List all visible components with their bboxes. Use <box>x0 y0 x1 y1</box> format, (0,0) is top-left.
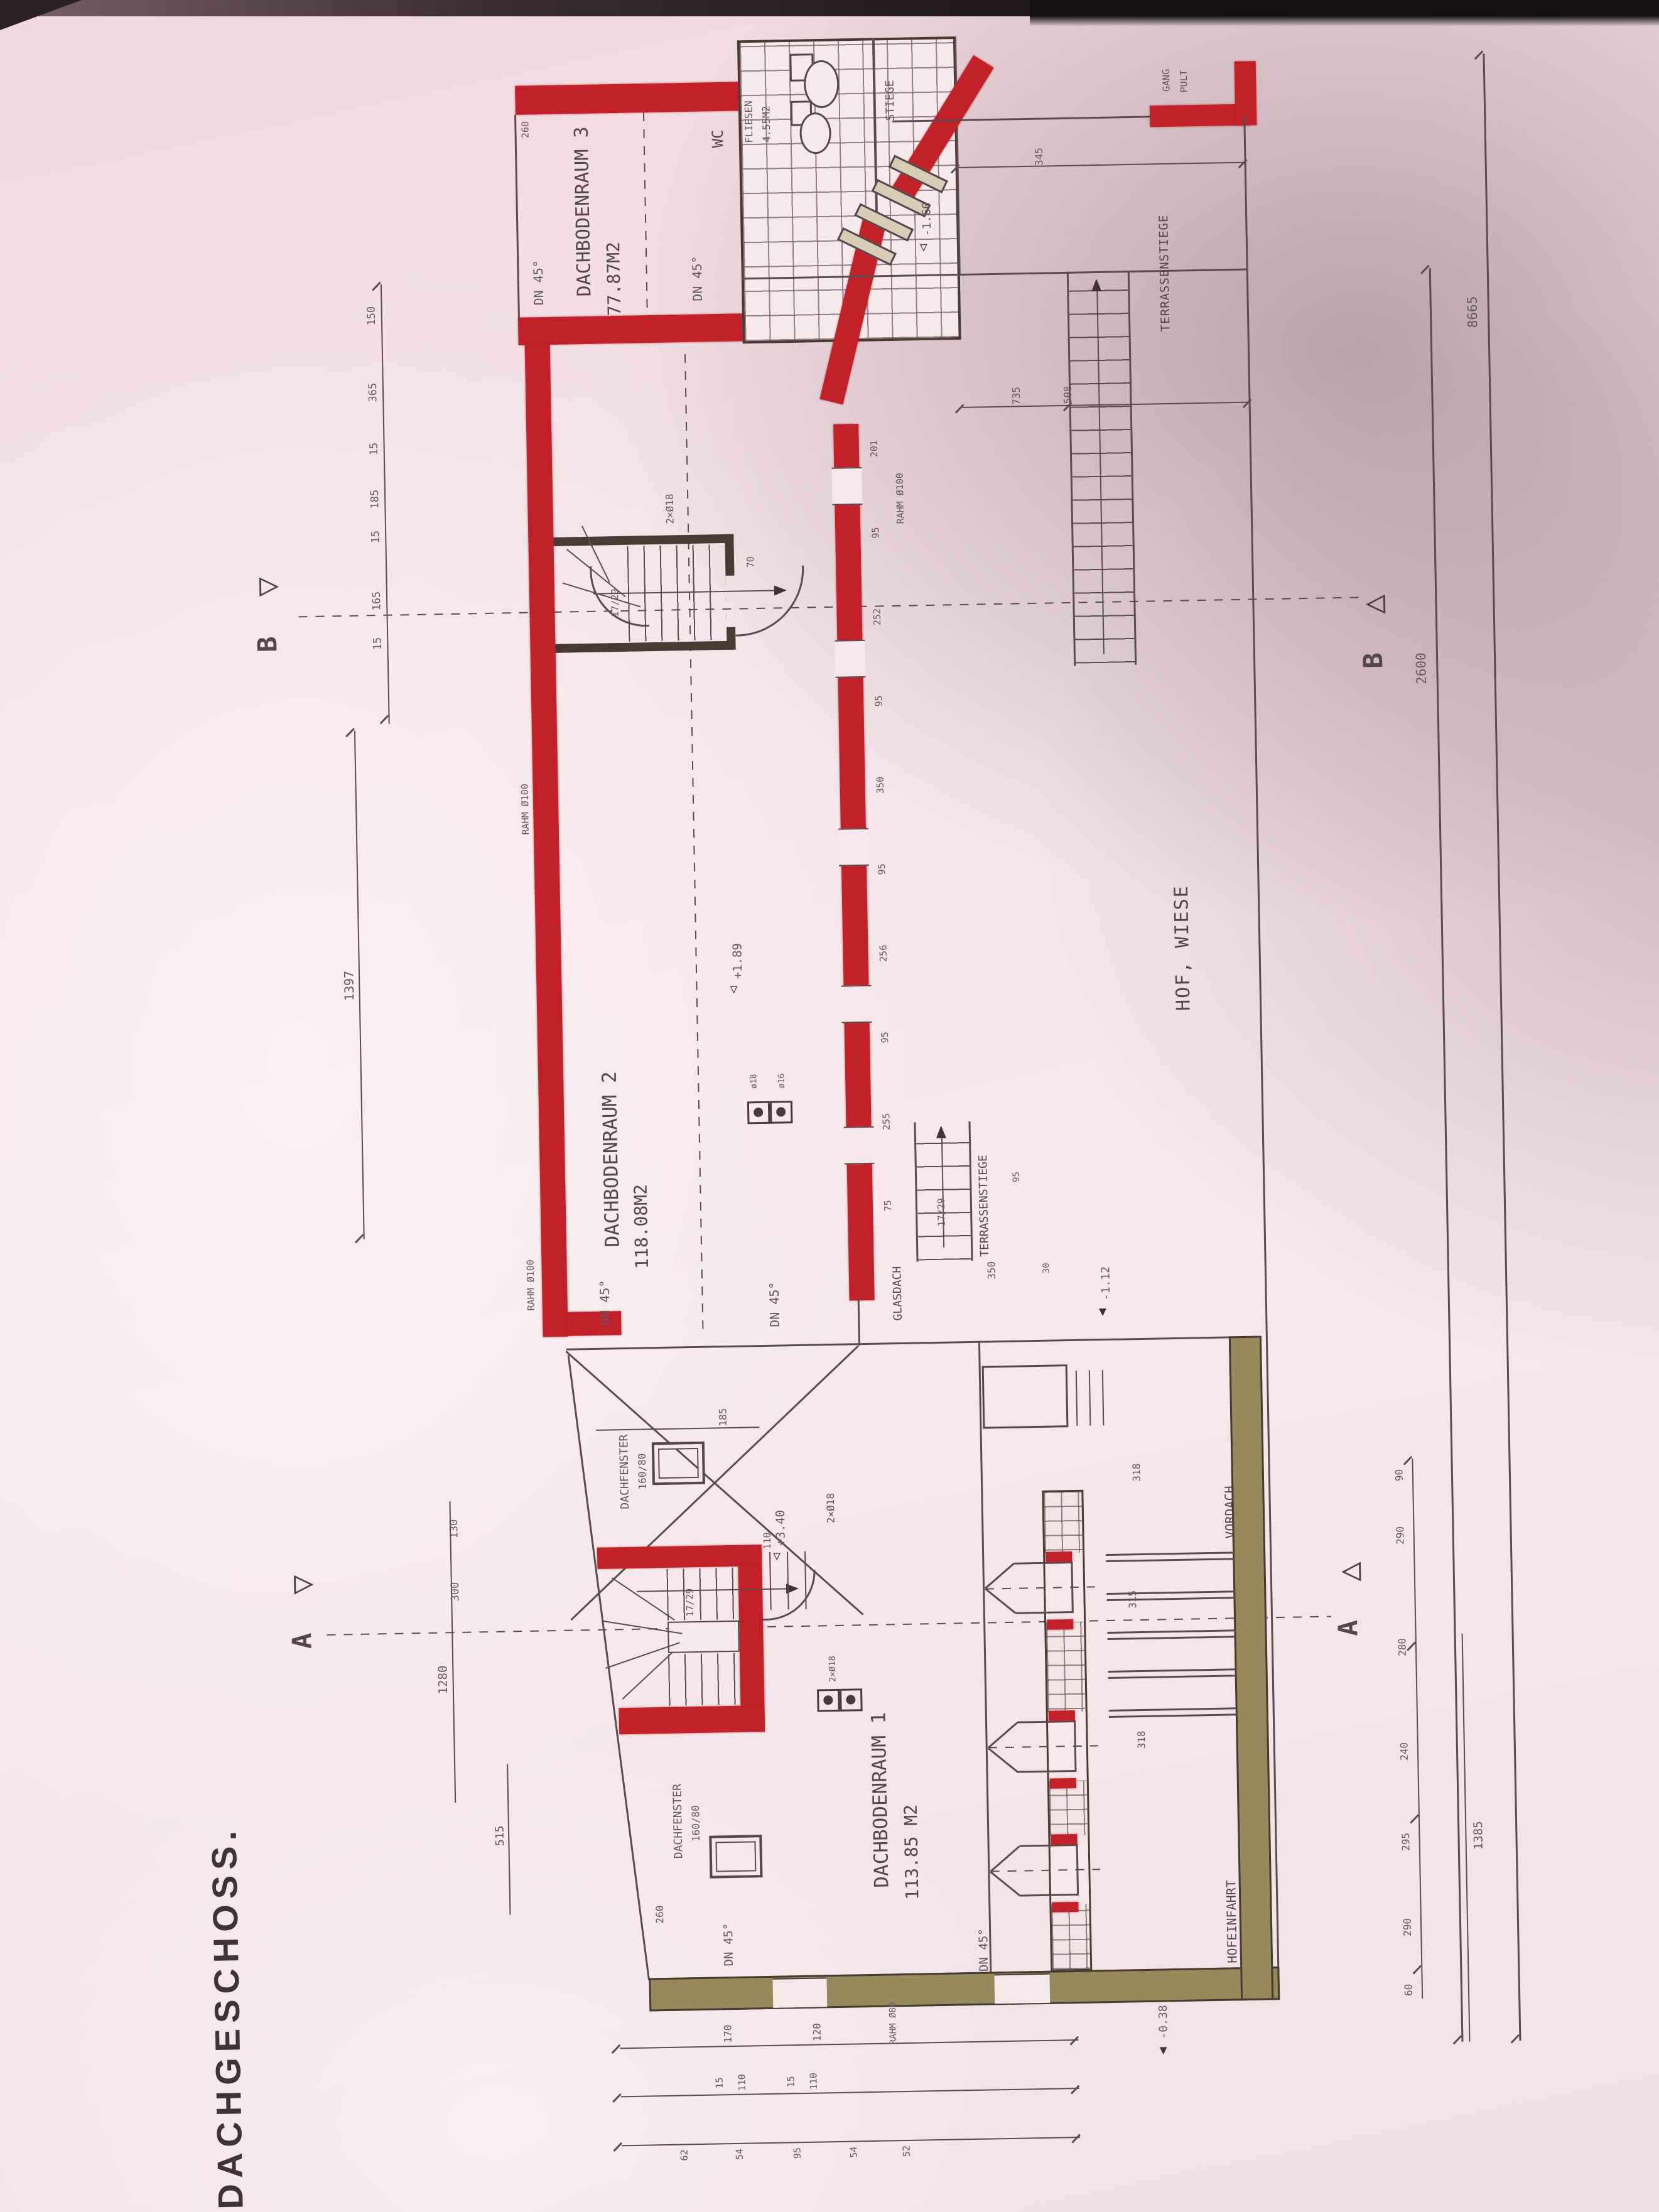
tick <box>345 728 355 737</box>
b2-2: 15 <box>786 2076 796 2087</box>
glasdach-wall-lower <box>858 1298 860 1346</box>
tick <box>1071 2085 1080 2095</box>
note-rahm100-3: RAHM Ø100 <box>895 473 906 524</box>
vordach-beam-1a <box>1106 1551 1234 1556</box>
stair2-wall-top <box>597 1545 762 1569</box>
level-160-marker: ▽ <box>920 240 927 253</box>
rchain-5: 290 <box>1402 1918 1413 1936</box>
llower-3: 515 <box>494 1825 506 1846</box>
section-a-left-arrow: ▷ <box>294 1566 314 1599</box>
terrace-door <box>982 1364 1069 1428</box>
dim-line-total <box>1483 54 1521 2041</box>
tick <box>372 281 381 291</box>
tick <box>1420 265 1430 274</box>
b3-1: 54 <box>735 2149 745 2160</box>
note-rahm80: RAHM Ø80 <box>889 2002 899 2045</box>
dim-line-bottom-3 <box>622 2137 1080 2146</box>
dim-1397: 1397 <box>342 971 356 1001</box>
pult-label: PULT <box>1179 70 1189 92</box>
dim-735: 735 <box>1012 387 1022 405</box>
wall-dim-0: 201 <box>870 440 880 457</box>
stiege-label: STIEGE <box>885 80 897 121</box>
hofeinfahrt-label: HOFEINFAHRT <box>1224 1880 1239 1963</box>
tick <box>613 2142 622 2152</box>
floorplan-photo: DACHGESCHOSS. DACHBODENRAUM 3 77.87M2 DN… <box>0 0 1659 2212</box>
window-opening-3 <box>838 828 869 866</box>
dim-line-bottom-2 <box>621 2088 1079 2097</box>
dim-line-inner <box>1429 268 1464 2042</box>
b2-1: 110 <box>737 2074 747 2091</box>
vordach-beam-3b <box>1108 1636 1236 1640</box>
lchain-2: 15 <box>369 443 381 456</box>
note-dn45-2: DN 45° <box>691 256 705 301</box>
dim-70: 70 <box>746 556 756 568</box>
dim-315: 315 <box>1128 1590 1138 1609</box>
dim-260-lower: 260 <box>655 1906 666 1924</box>
dim-line-bottom-1 <box>620 2039 1078 2049</box>
lchain-6: 15 <box>372 637 384 650</box>
bottom-window-gap-2 <box>994 1973 1050 2005</box>
note-rahm100-2: RAHM Ø100 <box>526 1260 537 1311</box>
vordach-beam-4b <box>1108 1675 1236 1679</box>
dim-318-a: 318 <box>1132 1464 1142 1482</box>
dormer-b-cheek-bot <box>1052 1902 1078 1913</box>
b3-3: 54 <box>849 2146 859 2157</box>
section-a-right-arrow: ◁ <box>1341 1553 1361 1587</box>
b3-0: 62 <box>680 2149 690 2161</box>
note-dn45-6: DN 45° <box>978 1928 991 1972</box>
dim-350: 350 <box>986 1261 997 1280</box>
stair2-winder-1 <box>612 1577 675 1621</box>
wall-corner-vertical <box>1235 61 1257 126</box>
wall-dim-2: 252 <box>873 608 883 625</box>
lchain-4: 15 <box>370 531 382 544</box>
section-line-b <box>299 596 1360 617</box>
wall-dim-6: 256 <box>878 945 889 962</box>
dormer-b-slant-bot <box>990 1871 1021 1897</box>
llower-1: 300 <box>450 1582 462 1602</box>
note-dn45-4: DN 45° <box>768 1281 782 1327</box>
section-b-left-letter: B <box>254 636 282 652</box>
wc-finish-label: FLIESEN <box>743 100 755 143</box>
dim-line-right-chain <box>1412 1459 1423 1999</box>
vordach-beam-5a <box>1109 1707 1237 1712</box>
dachfenster-upper <box>652 1442 705 1486</box>
flue-d18: ø18 <box>750 1074 759 1089</box>
rchain-1: 290 <box>1395 1526 1406 1545</box>
dormer-a-cheek-top <box>1049 1710 1075 1721</box>
section-a-left-letter: A <box>288 1632 316 1649</box>
dim-line-top-1 <box>958 162 1246 168</box>
stair2-landing-void <box>667 1621 740 1653</box>
wall-room3-bottom <box>518 313 743 345</box>
llower-2: 1280 <box>437 1665 450 1694</box>
stair1-flue-note: 2×Ø18 <box>665 494 676 524</box>
wc-label: WC <box>710 129 727 148</box>
wall-room2-left <box>525 345 568 1337</box>
level-340-marker: ▽ <box>773 1550 781 1562</box>
note-dn45-3: DN 45° <box>598 1280 612 1325</box>
plan-drawing: DACHGESCHOSS. DACHBODENRAUM 3 77.87M2 DN… <box>0 0 1659 2212</box>
dachfenster-upper-label: DACHFENSTER <box>619 1434 632 1509</box>
dim-line-1385 <box>1462 1634 1471 2042</box>
stair2-ratio: 17/29 <box>685 1588 696 1616</box>
dim-95-terr: 95 <box>1012 1172 1022 1182</box>
note-dn45-5: DN 45° <box>723 1923 736 1967</box>
window-opening-5 <box>844 1126 875 1165</box>
stair2-wall-bottom <box>619 1705 765 1734</box>
level-340-text: +3.40 <box>775 1510 788 1546</box>
note-dn45-1: DN 45° <box>532 260 546 306</box>
room2-name: DACHBODENRAUM 2 <box>600 1071 624 1248</box>
room1-flue-note: 2×Ø18 <box>826 1493 837 1523</box>
stair1-ratio: 17/29 <box>610 588 621 617</box>
room1-name: DACHBODENRAUM 1 <box>868 1712 892 1888</box>
b1-1: 120 <box>812 2023 823 2041</box>
section-a-right-letter: A <box>1334 1620 1363 1636</box>
terrassenstiege-arrowhead <box>1091 279 1101 291</box>
dim-110: 110 <box>763 1532 773 1549</box>
ridge-line-room2 <box>684 354 703 1330</box>
dormer-a-cheek-bot <box>1050 1778 1076 1789</box>
dachfenster-upper-size: 160/80 <box>637 1453 649 1489</box>
dachfenster-lower-size: 160/80 <box>691 1805 702 1842</box>
b1-0: 170 <box>723 2025 733 2043</box>
dim-260-top: 260 <box>521 121 531 138</box>
dormer-b-cheek-top <box>1051 1834 1077 1845</box>
dim-line-left-lower <box>449 1501 456 1803</box>
dim-508: 508 <box>1063 386 1074 404</box>
b3-4: 52 <box>902 2145 912 2157</box>
level-112-marker: ▼ <box>1099 1305 1106 1317</box>
room1-right-wall <box>978 1341 992 1974</box>
rchain-6: 60 <box>1403 1984 1414 1997</box>
rchain-0: 90 <box>1394 1469 1405 1482</box>
dim-185: 185 <box>718 1408 728 1427</box>
vordach-label: VORDACH <box>1223 1486 1238 1539</box>
wall-dim-9: 75 <box>884 1200 894 1211</box>
tick <box>955 404 965 413</box>
window-opening-2 <box>835 640 865 678</box>
stair1-wall-right-up <box>725 534 734 576</box>
hof-wiese-label: HOF, WIESE <box>1172 885 1194 1011</box>
dormer-c-cheek-bot <box>1047 1619 1073 1630</box>
terrstair2-arrowhead <box>936 1126 946 1138</box>
terrace-door-step-3 <box>1102 1370 1105 1425</box>
chimney2-flue-note: 2×Ø18 <box>828 1656 838 1682</box>
dachfenster-lower-label: DACHFENSTER <box>672 1784 685 1859</box>
rchain-2: 280 <box>1397 1638 1408 1656</box>
wall-dim-4: 350 <box>876 777 886 794</box>
b2-0: 15 <box>715 2077 725 2088</box>
vordach-beam-5b <box>1109 1713 1237 1718</box>
vordach-beam-1b <box>1106 1558 1234 1562</box>
wc-area-label: 4.55M2 <box>761 106 772 143</box>
stair1-wall-bottom <box>555 641 735 653</box>
tick <box>380 715 389 724</box>
terrace-door-step-2 <box>1089 1370 1091 1425</box>
section-line-a <box>327 1616 1331 1635</box>
room2-area: 118.08M2 <box>632 1184 652 1269</box>
tick <box>612 2044 621 2054</box>
dim-inner-2600: 2600 <box>1414 652 1429 684</box>
tick <box>1071 2134 1081 2144</box>
wall-room2-left-stub <box>568 1311 622 1336</box>
existing-wall-bottom <box>649 1967 1280 2011</box>
dormer-c-cheek-top <box>1046 1551 1072 1562</box>
level-160-text: -1.60 <box>921 202 934 237</box>
roof-edge-left-room3 <box>514 115 520 318</box>
tick <box>1474 50 1484 60</box>
wall-dim-7: 95 <box>880 1032 890 1043</box>
tick <box>1410 1815 1419 1824</box>
lchain-3: 185 <box>370 490 381 509</box>
vordach-beam-3a <box>1107 1629 1235 1634</box>
dim-total-8665: 8665 <box>1466 296 1480 328</box>
level-189-text: +1.89 <box>732 943 745 979</box>
dim-line-185 <box>596 1427 759 1431</box>
wall-dim-1: 95 <box>871 527 881 538</box>
terrstair2-ratio: 17/29 <box>937 1198 948 1226</box>
wall-dim-3: 95 <box>874 695 884 706</box>
rchain-4: 295 <box>1401 1833 1412 1851</box>
dormer-a-slant-bot <box>988 1747 1019 1773</box>
level-038-marker: ▼ <box>1159 2043 1167 2056</box>
dormer-c-slant-bot <box>985 1588 1015 1614</box>
section-b-right-arrow: ◁ <box>1365 586 1385 619</box>
level-189-marker: ▽ <box>730 983 737 995</box>
b2-3: 110 <box>809 2073 819 2090</box>
ridge-line-room3 <box>643 112 648 315</box>
level-112-text: -1.12 <box>1100 1266 1113 1301</box>
page-title: DACHGESCHOSS. <box>205 1825 249 2209</box>
gang-label: GANG <box>1162 69 1172 92</box>
stair1-wall-right-dn <box>727 627 736 650</box>
wall-dim-8: 255 <box>882 1113 892 1130</box>
wing-split-line <box>566 1336 1231 1350</box>
stair2-exit-arc <box>761 1570 816 1621</box>
dormer-b-slant-top <box>990 1845 1020 1872</box>
tick <box>355 1234 364 1243</box>
level-038-text: -0.38 <box>1158 2005 1170 2039</box>
rchain-3: 240 <box>1399 1742 1410 1761</box>
stair1-landing-arc <box>734 566 805 637</box>
vordach-beam-4a <box>1108 1668 1236 1673</box>
flue-d16: ø16 <box>777 1074 786 1089</box>
b3-2: 95 <box>793 2147 803 2159</box>
dim-line-515 <box>507 1764 511 1915</box>
dim-30: 30 <box>1042 1263 1051 1273</box>
section-b-left-arrow: ▷ <box>259 568 279 602</box>
lchain-5: 165 <box>372 591 383 611</box>
dormer-a-slant-top <box>988 1722 1018 1748</box>
dim-318-b: 318 <box>1137 1730 1147 1749</box>
dachfenster-lower <box>709 1835 762 1879</box>
room3-area: 77.87M2 <box>604 242 624 316</box>
room3-name: DACHBODENRAUM 3 <box>572 126 595 296</box>
tick <box>1403 1456 1413 1465</box>
llower-0: 130 <box>449 1519 460 1539</box>
section-b-right-letter: B <box>1359 652 1388 669</box>
dim-line-left-chain <box>381 284 390 724</box>
terrassenstiege-label-lower: TERRASSENSTIEGE <box>978 1155 992 1257</box>
bottom-window-gap-1 <box>772 1977 827 2009</box>
stair2-treads-up <box>666 1568 738 1621</box>
stair2-treads-down <box>668 1653 740 1706</box>
dim-1385: 1385 <box>1473 1821 1486 1850</box>
room1-area: 113.85 M2 <box>902 1805 922 1900</box>
note-rahm100-1: RAHM Ø100 <box>521 784 531 835</box>
glasdach-label: GLASDACH <box>892 1266 904 1321</box>
tick <box>1413 1965 1422 1975</box>
tick <box>612 2093 622 2103</box>
terrassenstiege-label-upper: TERRASSENSTIEGE <box>1158 215 1172 332</box>
dim-345: 345 <box>1034 148 1045 166</box>
tick <box>1453 2035 1462 2044</box>
dormer-c-slant-top <box>985 1562 1015 1589</box>
window-opening-4 <box>841 985 872 1023</box>
lchain-0: 150 <box>367 306 378 326</box>
window-opening-1 <box>831 467 862 505</box>
wall-dim-5: 95 <box>877 863 887 875</box>
lchain-1: 365 <box>368 383 379 402</box>
tick <box>1511 2034 1520 2044</box>
